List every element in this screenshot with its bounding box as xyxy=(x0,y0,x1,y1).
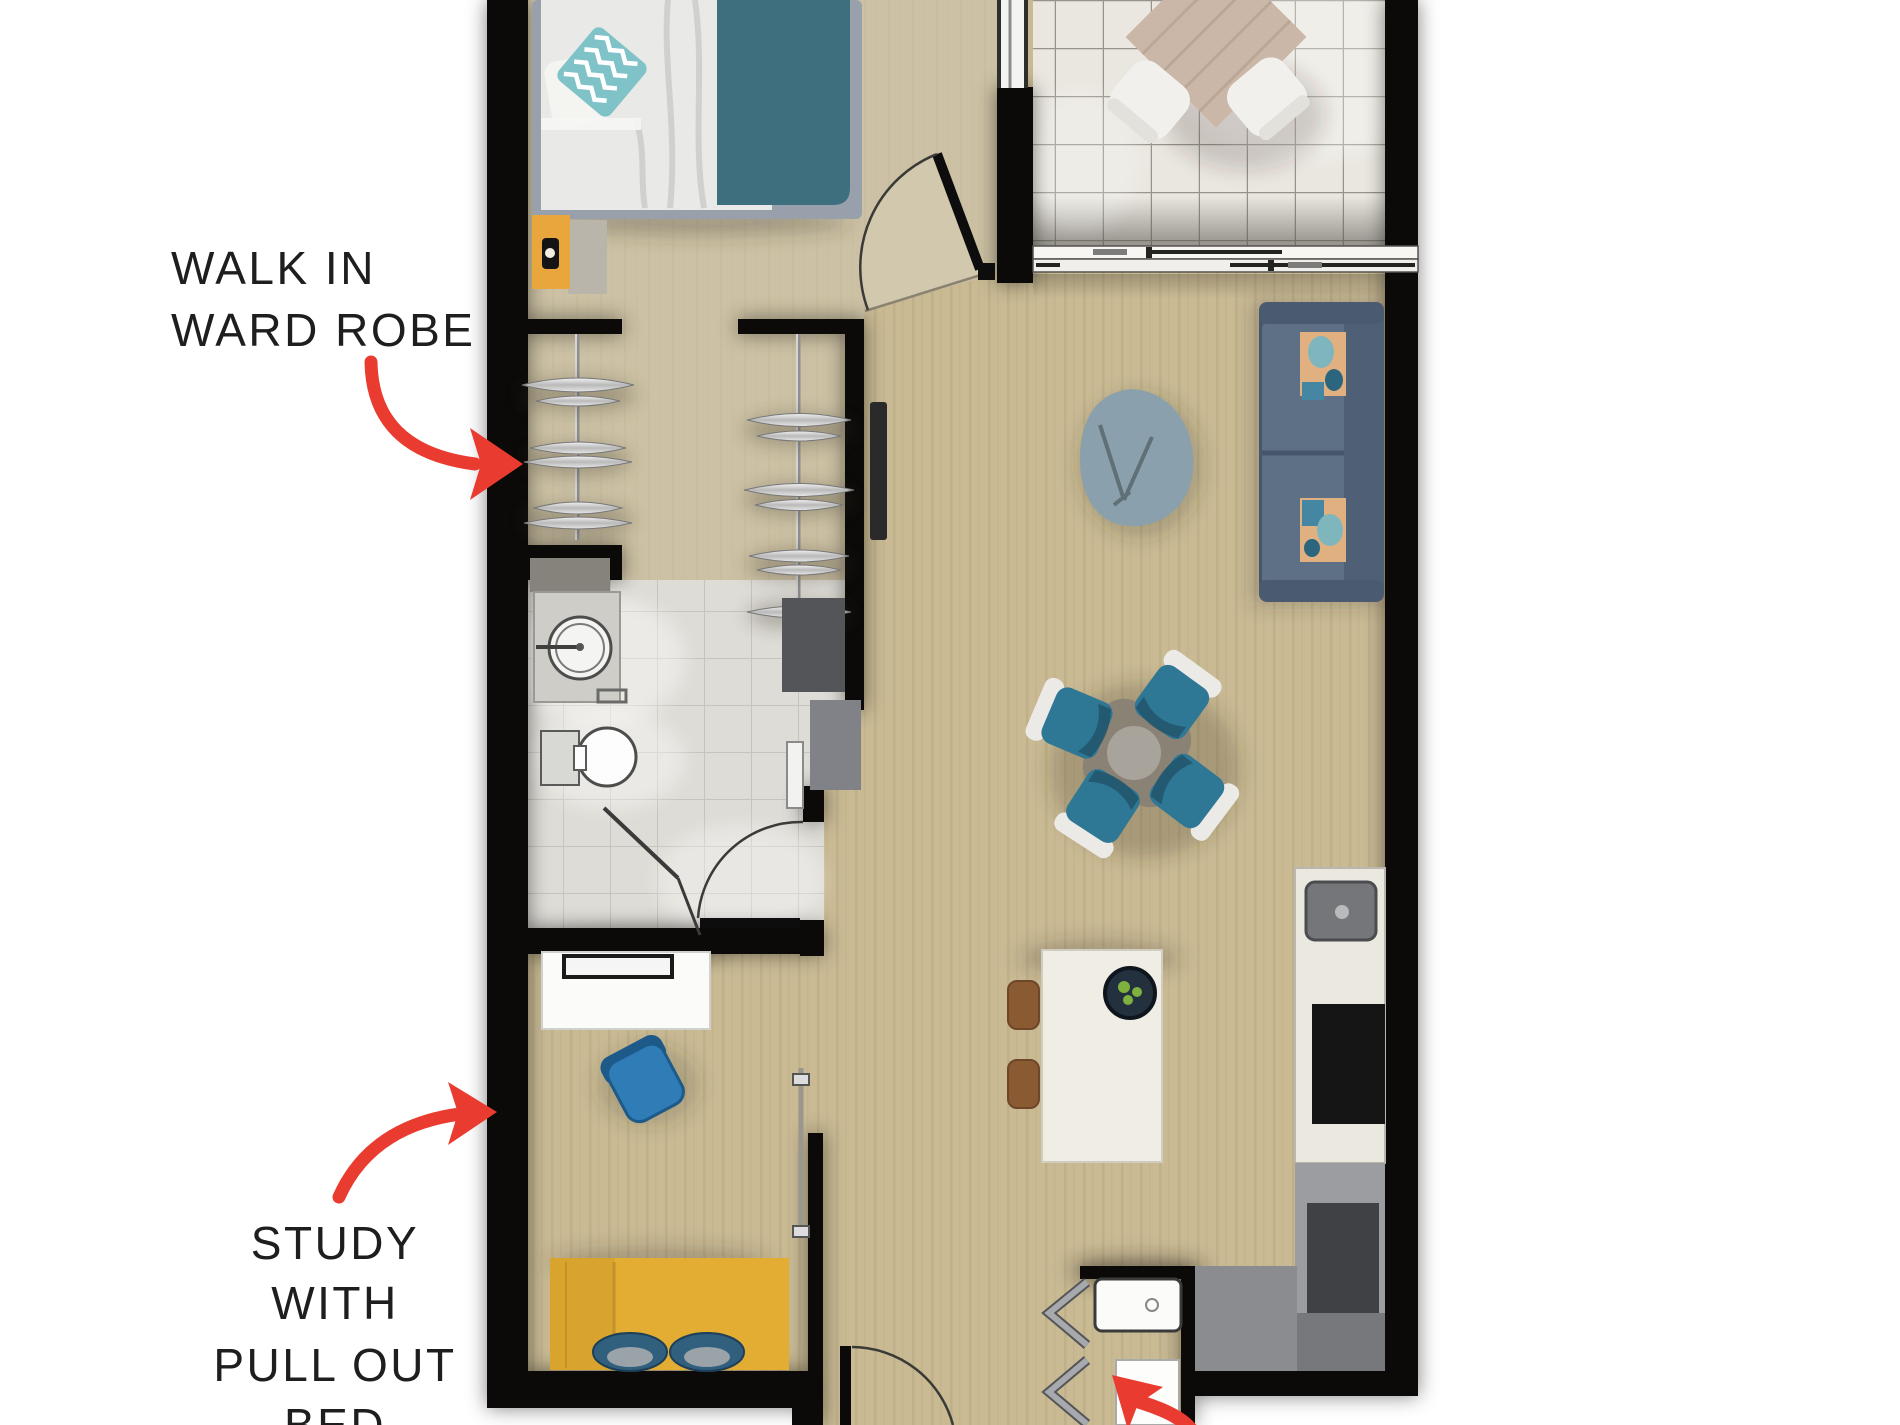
svg-text:STUDY: STUDY xyxy=(251,1217,419,1269)
svg-text:WALK IN: WALK IN xyxy=(171,242,376,294)
svg-text:WARD ROBE: WARD ROBE xyxy=(171,304,475,356)
svg-text:BED: BED xyxy=(284,1399,386,1425)
svg-text:WITH: WITH xyxy=(271,1277,399,1329)
svg-text:PULL OUT: PULL OUT xyxy=(213,1339,456,1391)
